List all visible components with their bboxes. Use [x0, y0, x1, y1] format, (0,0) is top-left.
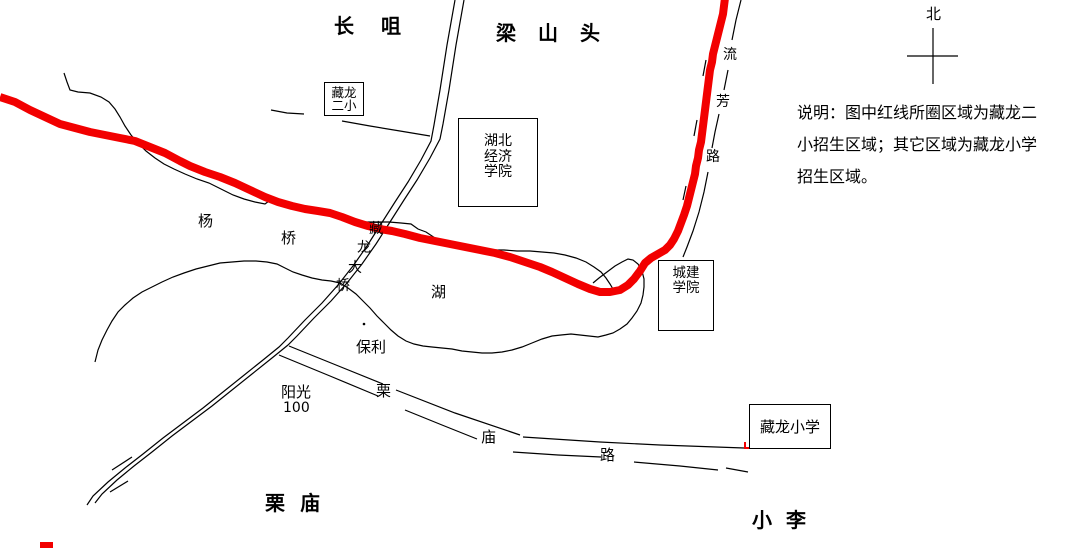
- chengjian-line1: 城建: [673, 266, 700, 281]
- limiao-road-lower-5: [726, 468, 748, 472]
- zanglong-erxiao-line2: 二小: [331, 99, 356, 112]
- main-road-west-line: [87, 0, 455, 505]
- zanglong-primary-school-box: 藏龙小学: [749, 404, 831, 449]
- liufang-road-label-fang: 芳: [716, 95, 730, 110]
- north-label: 北: [926, 7, 941, 23]
- limiao-road-upper-2: [396, 390, 520, 435]
- label-baoli: 保利: [356, 340, 386, 356]
- map-dot: [363, 323, 366, 326]
- label-yang: 杨: [198, 214, 213, 230]
- chengjian-college-box: 城建 学院: [658, 260, 714, 331]
- limiao-road-lower-3: [513, 452, 601, 457]
- chengjian-line2: 学院: [673, 281, 700, 296]
- area-label-xiaoli: 小李: [752, 510, 820, 531]
- limiao-road-lower-2: [405, 410, 477, 439]
- north-path-segment-1: [271, 110, 304, 114]
- liufang-road-west-2: [694, 120, 697, 136]
- liufang-road-east-1: [732, 0, 741, 40]
- liufang-road-label-liu: 流: [723, 48, 737, 63]
- note-line3: 招生区域。: [797, 161, 1068, 193]
- limiao-road-upper-3: [523, 437, 744, 448]
- bridge-label-da: 大: [348, 261, 362, 276]
- liufang-road-label-lu: 路: [706, 150, 720, 165]
- bridge-label-qiao: 桥: [336, 279, 350, 294]
- map-note: 说明：图中红线所圈区域为藏龙二 小招生区域；其它区域为藏龙小学 招生区域。: [797, 97, 1068, 193]
- limiao-road-lower-4: [634, 462, 718, 470]
- liufang-road-east-3: [712, 114, 719, 148]
- zanglong-primary-label: 藏龙小学: [760, 416, 820, 437]
- area-label-changju: 长咀: [334, 16, 428, 37]
- area-label-liangshantou: 梁山头: [496, 23, 622, 44]
- school-district-map: 长咀 梁山头 栗庙 小李 杨 桥 藏 龙 大 桥 湖 保利 阳光 100 栗 庙…: [0, 0, 1068, 558]
- main-road-east-line: [95, 0, 464, 503]
- hubei-line2: 经济: [484, 150, 512, 166]
- label-qiao: 桥: [281, 231, 296, 247]
- label-lake: 湖: [431, 285, 446, 301]
- note-line2: 小招生区域；其它区域为藏龙小学: [797, 129, 1068, 161]
- limiao-road-label-lu: 路: [600, 448, 615, 464]
- hubei-line1: 湖北: [484, 134, 512, 150]
- red-bar-mark: [40, 542, 53, 548]
- area-label-limiao: 栗庙: [265, 493, 335, 514]
- limiao-road-label-miao: 庙: [481, 430, 496, 446]
- map-drawing: [0, 0, 1068, 558]
- zanglong-erxiao-box: 藏龙 二小: [324, 82, 364, 116]
- road-hatch-mark-1: [112, 457, 132, 470]
- note-line1: 说明：图中红线所圈区域为藏龙二: [797, 97, 1068, 129]
- hubei-economics-college-box: 湖北 经济 学院: [458, 118, 538, 207]
- hubei-line3: 学院: [484, 165, 512, 181]
- label-yangguang-number: 100: [283, 401, 310, 416]
- label-yangguang: 阳光: [281, 385, 311, 401]
- bridge-label-long: 龙: [357, 241, 371, 256]
- bridge-label-zang: 藏: [369, 222, 383, 237]
- north-path-segment-2: [342, 121, 430, 136]
- road-hatch-mark-2: [110, 481, 128, 492]
- limiao-road-label-li: 栗: [376, 384, 391, 400]
- liufang-road-east-2: [724, 70, 728, 90]
